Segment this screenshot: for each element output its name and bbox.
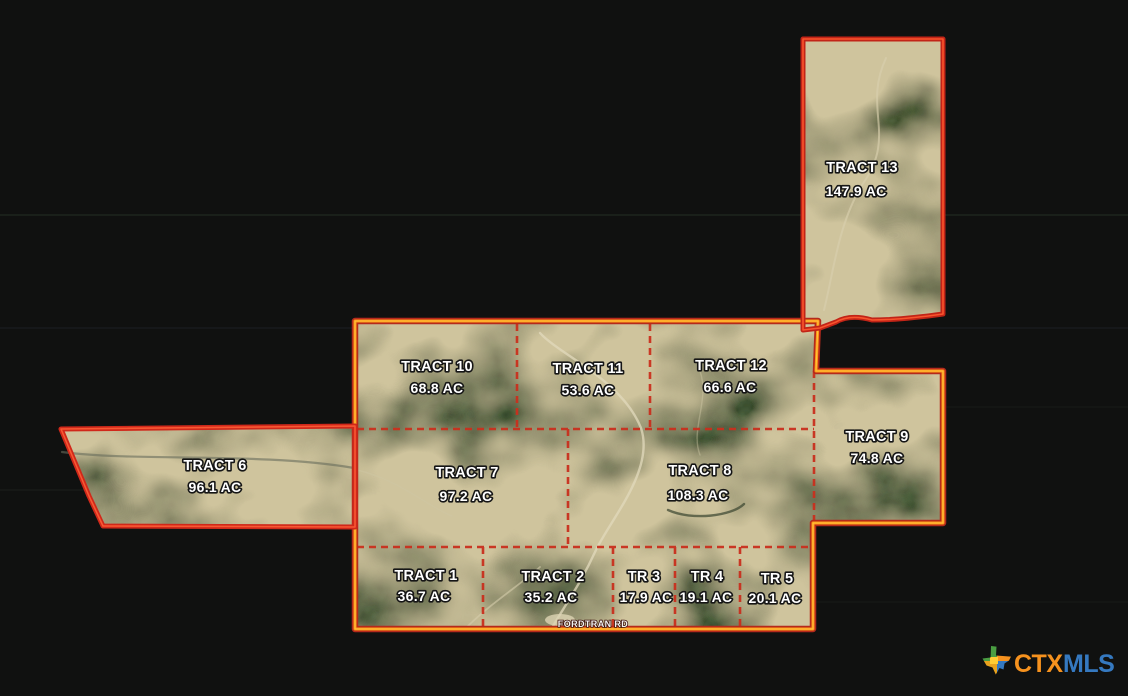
tract-13-acreage: 147.9 AC [825, 183, 886, 199]
tract-9-name: TRACT 9 [845, 429, 908, 445]
tract-6-name: TRACT 6 [183, 458, 246, 474]
tract-11-acreage: 53.6 AC [562, 382, 615, 398]
tract-8-name: TRACT 8 [668, 463, 731, 479]
aerial-plat-map: TRACT 13 147.9 AC TRACT 10 68.8 AC TRACT… [0, 0, 1128, 696]
tract-13-name: TRACT 13 [826, 160, 898, 176]
tract-10-name: TRACT 10 [401, 359, 473, 375]
tract-2-name: TRACT 2 [521, 569, 584, 585]
tract-2-acreage: 35.2 AC [525, 589, 578, 605]
tract-5-acreage: 20.1 AC [749, 590, 802, 606]
tract-10-acreage: 68.8 AC [411, 380, 464, 396]
tract-6-acreage: 96.1 AC [189, 479, 242, 495]
tract-12-name: TRACT 12 [695, 358, 767, 374]
tract-4-name: TR 4 [691, 569, 724, 585]
tract-7-acreage: 97.2 AC [440, 488, 493, 504]
tract-1-name: TRACT 1 [394, 568, 457, 584]
logo-text-ctx: CTX [1014, 650, 1063, 678]
tract-8-acreage: 108.3 AC [667, 487, 728, 503]
tract-12-acreage: 66.6 AC [704, 379, 757, 395]
tract-5-name: TR 5 [761, 571, 794, 587]
road-label: FORDTRAN RD [558, 619, 628, 629]
tract-3-name: TR 3 [628, 569, 661, 585]
logo-text-mls: MLS [1063, 650, 1114, 678]
plat-map-svg: TRACT 13 147.9 AC TRACT 10 68.8 AC TRACT… [0, 0, 1128, 696]
tract-4-acreage: 19.1 AC [680, 589, 733, 605]
tract-9-acreage: 74.8 AC [851, 450, 904, 466]
tract-11-name: TRACT 11 [553, 361, 624, 377]
tract-1-acreage: 36.7 AC [398, 588, 451, 604]
tract-7-name: TRACT 7 [435, 465, 498, 481]
tract-3-acreage: 17.9 AC [620, 589, 673, 605]
